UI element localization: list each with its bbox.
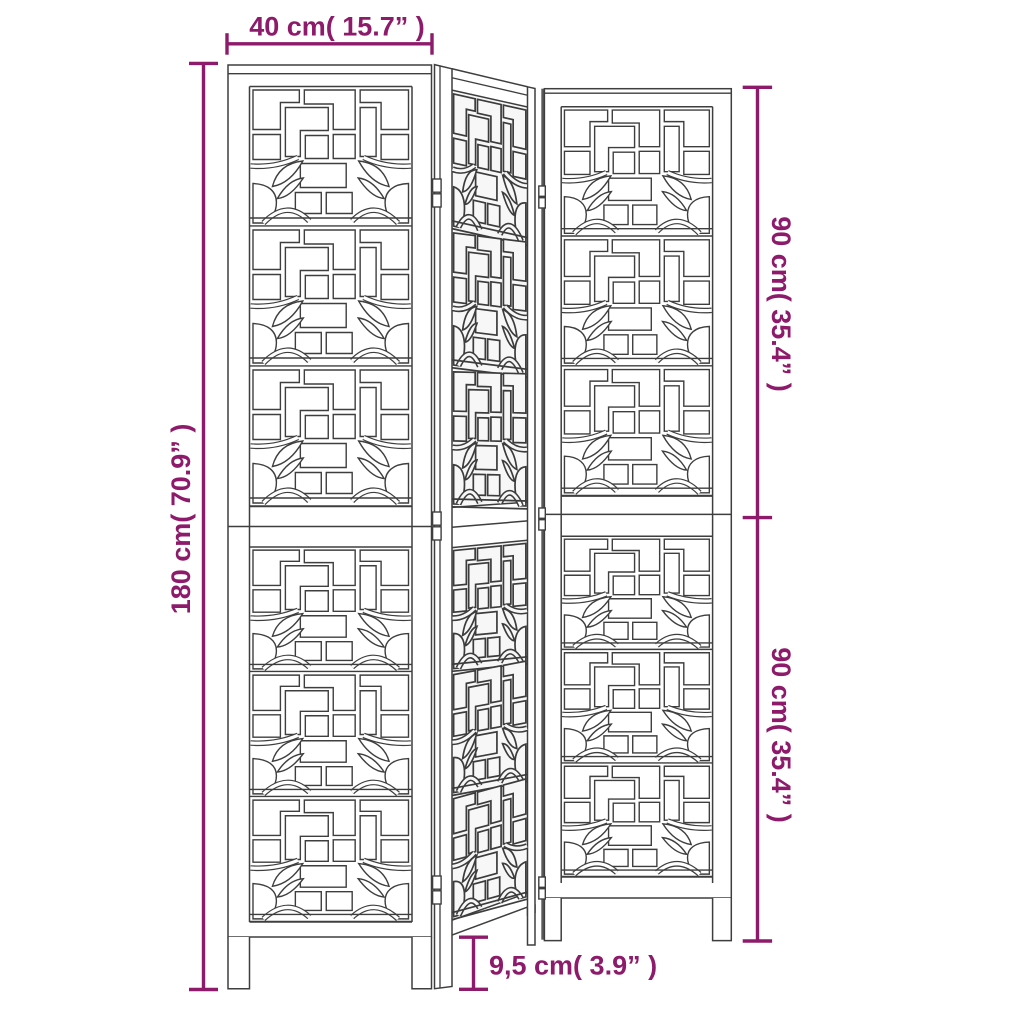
svg-text:40 cm( 15.7” ): 40 cm( 15.7” ) (249, 12, 425, 42)
svg-text:9,5 cm( 3.9” ): 9,5 cm( 3.9” ) (489, 951, 657, 981)
svg-text:90 cm( 35.4” ): 90 cm( 35.4” ) (766, 647, 796, 823)
svg-text:90 cm( 35.4” ): 90 cm( 35.4” ) (766, 216, 796, 392)
svg-text:180 cm( 70.9” ): 180 cm( 70.9” ) (166, 424, 196, 615)
